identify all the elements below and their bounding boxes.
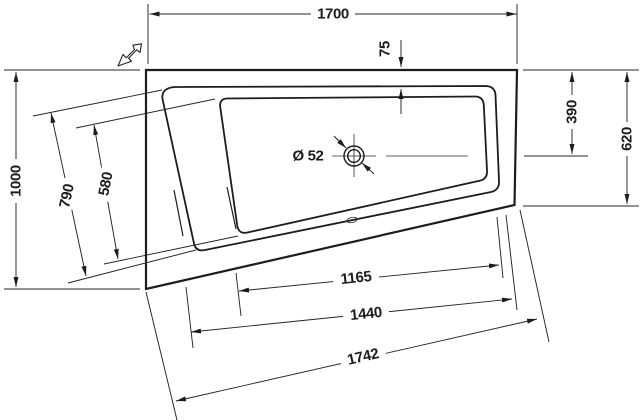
dim-label-overall-depth: 1000 [8,159,25,203]
dim-label-slant-basin: 1165 [332,267,380,289]
view-direction-arrow-icon [118,44,142,66]
svg-text:1440: 1440 [349,304,382,324]
dim-label-drain-diameter: Ø 52 [293,148,324,165]
svg-text:75: 75 [377,41,394,57]
svg-text:620: 620 [619,127,636,151]
svg-text:790: 790 [56,183,78,210]
svg-text:390: 390 [564,100,581,124]
bathtub-dimension-drawing: 1700 1000 75 390 620 790 580 Ø 52 1165 1… [0,0,640,420]
tub-outline [146,70,517,289]
drawing-canvas: 1700 1000 75 390 620 790 580 Ø 52 1165 1… [0,0,640,420]
dim-label-right-depth: 620 [619,122,636,156]
dim-label-rim-width: 75 [377,37,394,61]
dim-label-head-width-basin: 580 [94,166,117,203]
svg-text:Ø 52: Ø 52 [293,148,324,165]
dim-label-overall-width: 1700 [311,6,355,23]
dim-label-head-width-rim: 790 [55,178,79,215]
svg-text:1000: 1000 [8,165,25,197]
dim-label-slant-overall: 1742 [339,344,388,371]
dim-label-drain-offset: 390 [564,95,581,129]
svg-text:580: 580 [95,171,116,198]
svg-text:1165: 1165 [340,268,373,288]
svg-text:1700: 1700 [317,6,349,23]
dim-label-slant-rim: 1440 [342,303,390,325]
svg-text:1742: 1742 [346,345,381,369]
